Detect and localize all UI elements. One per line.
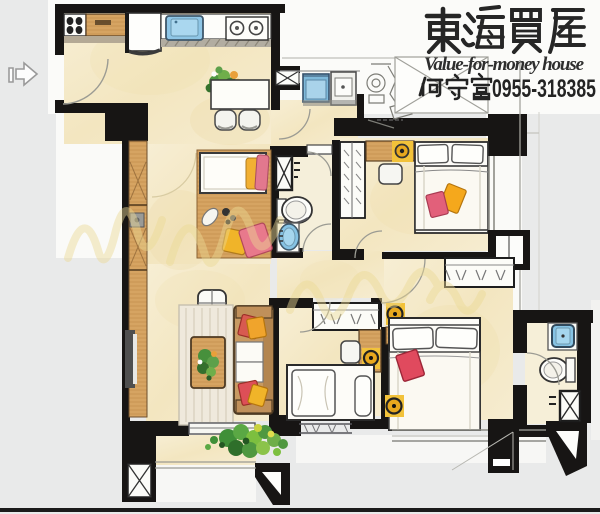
svg-text:Value-for-money house: Value-for-money house [424,54,585,75]
svg-text:0955-318385: 0955-318385 [492,75,596,103]
